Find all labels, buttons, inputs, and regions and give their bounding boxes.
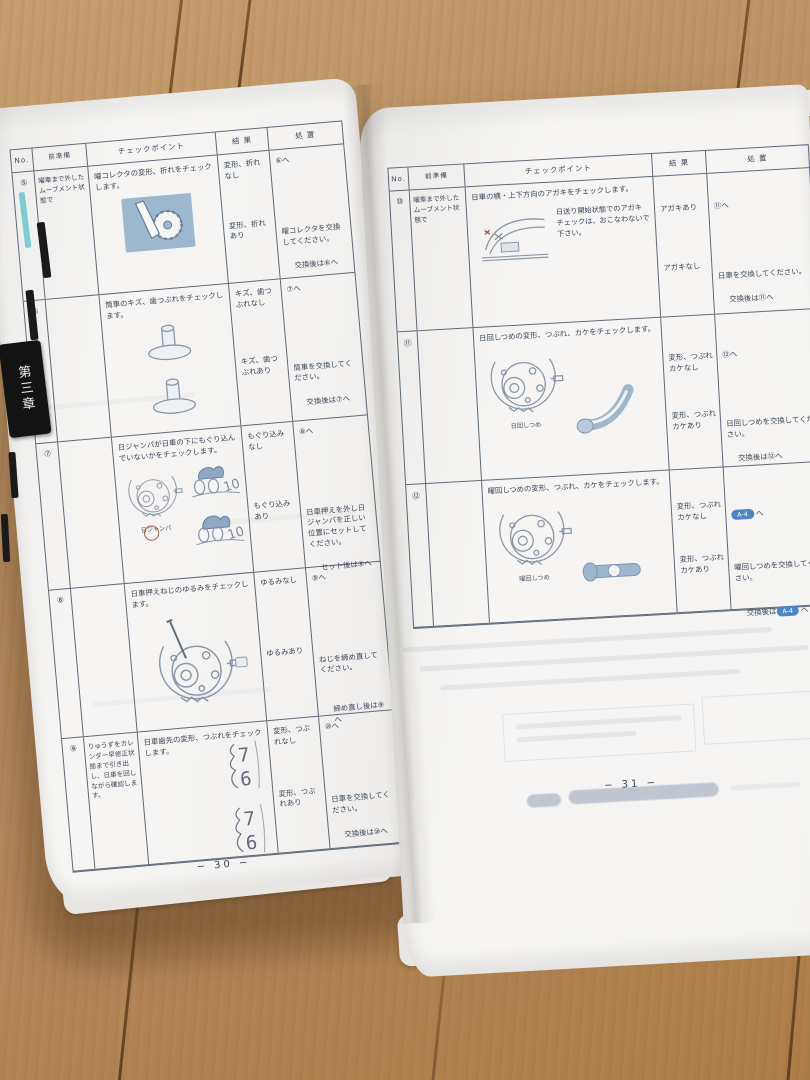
showthrough-box (701, 690, 810, 745)
date-numeral-illustration: 7 6 (224, 740, 262, 791)
row-number: ⑤ (13, 177, 35, 188)
figure-label: 曜回しつめ (492, 572, 576, 586)
table-row: ⑧ 日車押えねじのゆるみをチェックします。 ゆるみなし ゆる (49, 562, 393, 739)
action-text: 交換後は⑦へ (296, 392, 363, 408)
action-text: 曜回しつめを交換してください。 (734, 558, 810, 585)
date-wheel-play-illustration (472, 207, 553, 263)
numeral-6: 6 (245, 832, 258, 855)
action-text: へ (801, 605, 809, 614)
result-text: 変形、つぶれ カケなし (676, 500, 722, 524)
result-text: アガキあり (660, 202, 706, 215)
action-text: 曜コレクタを交換してください。 (281, 222, 349, 249)
day-finger-illustration (581, 554, 645, 587)
result-text: 変形、折れ あり (228, 217, 273, 242)
photo-scene: No. 前準備 チェックポイント 結 果 処 置 ⑤ 曜車まで外したムーブメント… (0, 0, 810, 1080)
action-text: ⑦へ (286, 279, 353, 295)
action-text: ⑫へ (722, 345, 810, 361)
result-text: ゆるみあり (266, 645, 310, 659)
result-text: 変形、つぶ れあり (278, 785, 323, 810)
date-jumper-ok-illustration: 10 (188, 460, 243, 498)
jumper-position-mark (122, 496, 189, 557)
ref-badge-a4: A-4 (731, 509, 754, 521)
result-text: 変形、つぶれ カケあり (679, 553, 725, 577)
table-row: ⑨ りゅうずをカレンダー早修正状態まで引き出し、日車を回しながら確認します。 日… (62, 710, 404, 871)
prep-cell: 曜車まで外したムーブメント状態で (410, 187, 474, 330)
table-row: ⑪ 日回しつめの変形、つぶれ、カケをチェックします。 日回しつめ (398, 309, 810, 485)
showthrough-text (419, 645, 809, 672)
row-number: ⑧ (50, 595, 72, 606)
date-jumper-ng-illustration: 10 (192, 508, 247, 546)
header-prep: 前準備 (408, 164, 465, 189)
checkpoint-text: 日車の横・上下方向のアガキをチェックします。 (471, 182, 648, 203)
checkpoint-text: 日ジャンパが日車の下にもぐり込んでいないかをチェックします。 (117, 432, 237, 465)
table-row: ⑩ 曜車まで外したムーブメント状態で 日車の横・上下方向のアガキをチェックします… (390, 168, 810, 332)
hour-wheel-illustration (142, 372, 203, 419)
result-text: アガキなし (663, 261, 709, 274)
checkpoint-note: 日送り開始状態でのアガキチェックは、おこなわないで下さい。 (556, 201, 651, 240)
result-text: キズ、歯つ ぶれなし (234, 286, 279, 311)
row-number: ⑨ (63, 743, 85, 754)
showthrough-box (502, 703, 696, 762)
action-text: ⑪へ (714, 196, 808, 212)
day-corrector-illustration (121, 193, 195, 253)
result-text: もぐり込み なし (247, 428, 292, 453)
checkpoint-table-left: No. 前準備 チェックポイント 結 果 処 置 ⑤ 曜車まで外したムーブメント… (9, 120, 405, 872)
action-text: 日車押えを外し日ジャンパを正しい位置にセットしてください。 (306, 502, 375, 551)
table-row: ⑦ 日ジャンパが日車の下にもぐり込んでいないかをチェックします。 日ジャンパ (36, 415, 380, 590)
action-text: ⑥へ (275, 151, 342, 167)
action-text: 交換後は (747, 607, 777, 618)
hour-wheel-illustration (138, 318, 199, 365)
checkpoint-text: 筒車のキズ、歯つぶれをチェックします。 (105, 289, 225, 322)
row-number: ⑪ (398, 337, 418, 349)
result-text: 変形、折れ なし (223, 157, 268, 182)
date-finger-illustration (572, 377, 639, 438)
date-numeral-illustration: 7 6 (230, 804, 268, 855)
action-text: へ (756, 508, 764, 517)
action-text: 交換後は⑥へ (284, 257, 351, 273)
checkpoint-text: 曜コレクタの変形、折れをチェックします。 (94, 161, 214, 194)
table-row: ⑫ 曜回しつめの変形、つぶれ、カケをチェックします。 曜回しつめ (406, 462, 810, 628)
movement-sketch (488, 498, 576, 575)
showthrough-pill (527, 793, 562, 808)
table-row: ⑥ 筒車のキズ、歯つぶれをチェックします。 (24, 273, 367, 444)
showthrough-text (402, 627, 772, 653)
row-number: ⑦ (37, 448, 59, 459)
action-text: 筒車を交換してください。 (293, 357, 361, 384)
header-result: 結 果 (216, 128, 270, 154)
numeral-7: 7 (243, 808, 256, 831)
numeral-7: 7 (237, 744, 250, 767)
showthrough-text (730, 782, 800, 791)
movement-screw-illustration (140, 611, 252, 716)
checkpoint-text: 日車押えねじのゆるみをチェックします。 (130, 578, 250, 611)
checkpoint-table-right: No. 前準備 チェックポイント 結 果 処 置 ⑩ 曜車まで外したムーブメント… (387, 144, 810, 629)
result-text: 変形、つぶ れなし (273, 723, 318, 748)
page-number: − 31 − (604, 778, 658, 792)
ref-badge-a4: A-4 (776, 605, 799, 617)
action-text: ねじを締め直してください。 (319, 649, 387, 676)
action-text: 日回しつめを交換してください。 (726, 414, 810, 441)
result-text: 変形、つぶれ カケなし (668, 351, 714, 375)
showthrough-text (440, 669, 740, 691)
result-text: もぐり込み あり (253, 498, 298, 523)
numeral-6: 6 (239, 768, 252, 791)
chapter-tab-label: 第三章 (13, 364, 38, 414)
result-text: ゆるみなし (260, 575, 304, 589)
action-text: ⑧へ (299, 422, 366, 438)
header-no: No. (10, 148, 34, 172)
header-result: 結 果 (652, 151, 707, 176)
result-text: 変形、つぶれ カケあり (671, 409, 717, 433)
row-number: ⑩ (390, 197, 409, 207)
movement-sketch (480, 345, 568, 422)
action-text: 交換後は⑪へ (719, 290, 810, 306)
header-no: No. (388, 168, 409, 191)
result-text: キズ、歯つ ぶれあり (240, 353, 285, 378)
action-text: 日車を交換してください。 (718, 266, 810, 282)
action-text: ⑨へ (312, 568, 379, 584)
figure-label: 日回しつめ (484, 419, 568, 433)
